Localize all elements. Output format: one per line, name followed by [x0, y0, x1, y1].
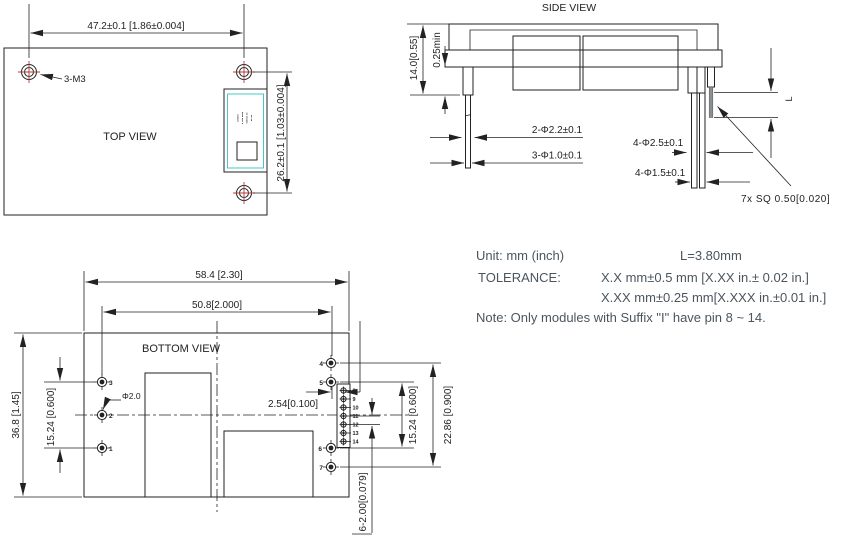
header-pitch-dim-text: 6-2.00[0.079]: [358, 472, 369, 531]
svg-text:13: 13: [353, 431, 359, 437]
side-view-left-pin: [463, 67, 473, 168]
svg-text:10: 10: [353, 406, 359, 412]
pin-diameter-text: Φ2.0: [122, 391, 141, 401]
suffix-note: Note: Only modules with Suffix "I" have …: [476, 310, 766, 325]
pin-length-label: L: [784, 96, 794, 101]
tolerance-label: TOLERANCE:: [478, 270, 561, 285]
l-value-text: L=3.80mm: [680, 248, 742, 263]
right-outer-span-dim-text: 22.86 [0.900]: [443, 386, 454, 445]
right-pin-dim-text: 4-Φ1.5±0.1: [635, 168, 686, 179]
svg-text:▪▪▪▪▪▪: ▪▪▪▪▪▪: [236, 114, 240, 121]
square-pin-callout: 7x SQ 0.50[0.020]: [718, 107, 831, 206]
notes-block: Unit: mm (inch) L=3.80mm TOLERANCE: X.X …: [476, 248, 826, 325]
technical-drawing-page: 47.2±0.1 [1.86±0.004] 3-M3 TOP VIEW ▪▪▪▪…: [0, 0, 848, 545]
drawing-canvas: 47.2±0.1 [1.86±0.004] 3-M3 TOP VIEW ▪▪▪▪…: [0, 0, 848, 545]
pin-2-label: 2: [109, 413, 113, 420]
right-pin-span-dim-text: 15.24 [0.600]: [408, 386, 419, 445]
side-height-dim-text: 14.0[0.55]: [409, 36, 420, 81]
side-view-right-pins: [688, 67, 715, 188]
pin-span-dim-text: 50.8[2.000]: [192, 300, 242, 311]
svg-text:11: 11: [353, 414, 359, 420]
left-pin-span-dim-text: 15.24 [0.600]: [46, 388, 57, 447]
overall-width-dim-text: 58.4 [2.30]: [195, 270, 242, 281]
bottom-view: BOTTOM VIEW 58.4 [2.30] 50.8[2.000]: [11, 270, 454, 534]
product-label: ▪▪▪▪▪▪ ▪ ▪▪▪ ▪▪▪▪ ▪▪▪▪▪▪ ▪▪ ▪▪ ▪▪: [224, 89, 267, 172]
left-pin-dim-text: 3-Φ1.0±0.1: [532, 151, 583, 162]
screw-callout-text: 3-M3: [64, 74, 86, 85]
pin-6-label: 6: [318, 446, 322, 453]
svg-text:▪ ▪▪▪ ▪▪▪▪: ▪ ▪▪▪ ▪▪▪▪: [241, 112, 245, 124]
right-shoulder-dim-text: 4-Φ2.5±0.1: [633, 138, 684, 149]
svg-text:12: 12: [353, 423, 359, 429]
right-pin-span-dimension: 15.24 [0.600]: [402, 384, 419, 447]
pin-3-label: 3: [109, 380, 113, 387]
clearance-dim-text: 0.25min: [432, 32, 443, 68]
left-shoulder-dim-text: 2-Φ2.2±0.1: [532, 125, 583, 136]
tolerance-line1: X.X mm±0.5 mm [X.XX in.± 0.02 in.]: [601, 270, 809, 285]
svg-text:▪▪▪▪▪▪ ▪▪: ▪▪▪▪▪▪ ▪▪: [245, 113, 249, 124]
tolerance-line2: X.XX mm±0.25 mm[X.XXX in.±0.01 in.]: [601, 290, 826, 305]
bottom-view-title: BOTTOM VIEW: [142, 343, 221, 355]
top-view: 47.2±0.1 [1.86±0.004] 3-M3 TOP VIEW ▪▪▪▪…: [4, 4, 292, 215]
right-outer-span-dimension: 22.86 [0.900]: [433, 365, 454, 466]
svg-text:8: 8: [353, 389, 356, 395]
square-pin: [709, 87, 713, 118]
pin-4-label: 4: [319, 361, 323, 368]
pin-length-dimension: L: [714, 48, 794, 158]
top-view-title: TOP VIEW: [103, 131, 157, 143]
svg-text:▪▪ ▪▪: ▪▪ ▪▪: [250, 115, 254, 121]
overall-height-dim-text: 36.8 [1.45]: [11, 391, 22, 438]
pitch-dim-text: 2.54[0.100]: [268, 399, 318, 410]
pin-5-label: 5: [319, 380, 323, 387]
svg-text:9: 9: [353, 397, 356, 403]
left-pin-dimensions: 2-Φ2.2±0.1 3-Φ1.0±0.1: [430, 125, 583, 163]
svg-text:14: 14: [353, 440, 360, 446]
pin-7-label: 7: [319, 465, 323, 472]
square-pin-callout-text: 7x SQ 0.50[0.020]: [741, 194, 830, 205]
side-view-title: SIDE VIEW: [542, 2, 596, 14]
pin-1-label: 1: [109, 446, 113, 453]
product-label-window: [237, 142, 257, 160]
top-view-width-dim-text: 47.2±0.1 [1.86±0.004]: [87, 21, 184, 32]
unit-text: Unit: mm (inch): [476, 248, 564, 263]
top-view-height-dim-text: 26.2±0.1 [1.03±0.004]: [276, 84, 287, 181]
side-view: SIDE VIEW 2-Φ2.2±0.1 3-Φ1.0±0.1 4-Φ2.5±0…: [407, 2, 830, 205]
